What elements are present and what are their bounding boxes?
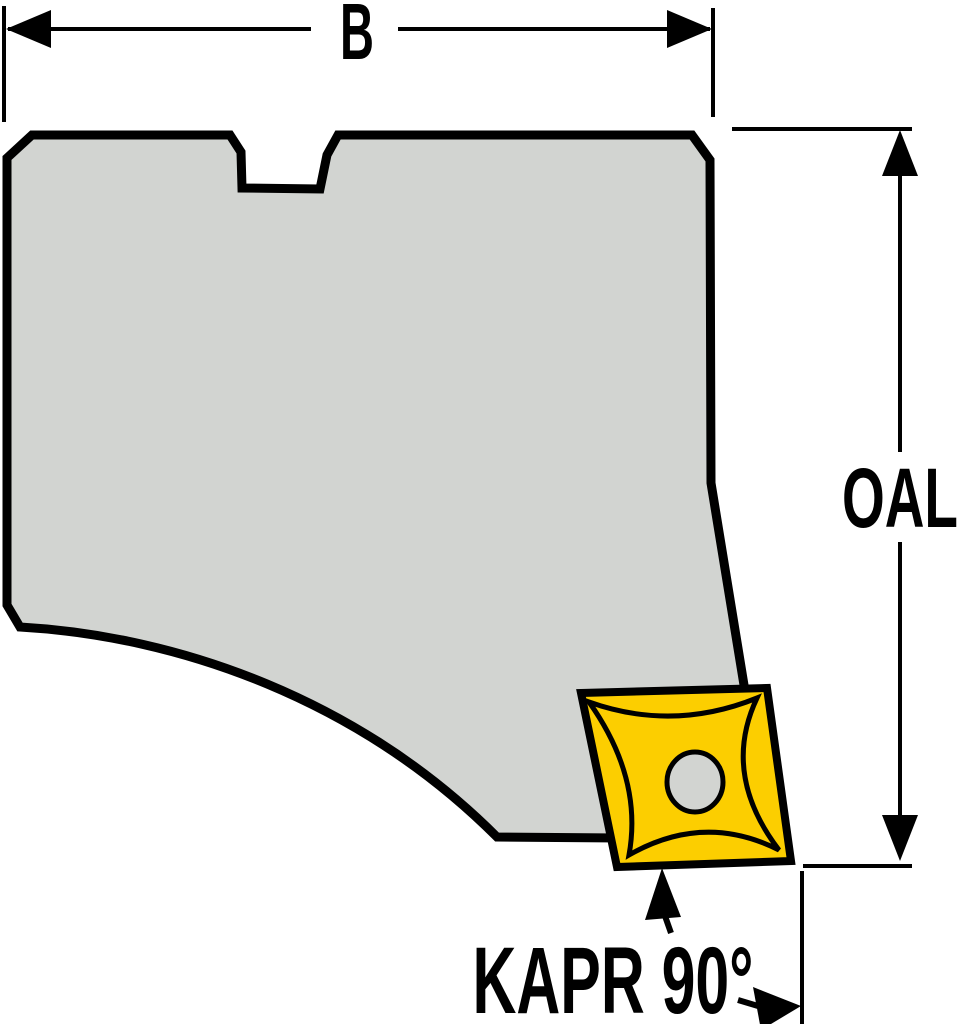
oal-dimension-label: OAL <box>842 451 958 545</box>
oal-arrowhead-down-icon <box>882 815 918 861</box>
kapr-arrowhead-up-icon <box>645 868 681 920</box>
indexable-insert <box>581 688 791 867</box>
oal-arrowhead-up-icon <box>882 130 918 176</box>
kapr-arrowhead-right-icon <box>753 987 801 1024</box>
kapr-angle-label: KAPR 90° <box>473 928 754 1024</box>
b-dimension-label: B <box>340 0 374 76</box>
toolholder-diagram: B OAL KAPR 90° <box>0 0 961 1024</box>
insert-hole <box>667 752 723 812</box>
b-arrowhead-left-icon <box>6 10 51 48</box>
b-arrowhead-right-icon <box>667 10 712 48</box>
technical-drawing-canvas: B OAL KAPR 90° <box>0 0 961 1024</box>
